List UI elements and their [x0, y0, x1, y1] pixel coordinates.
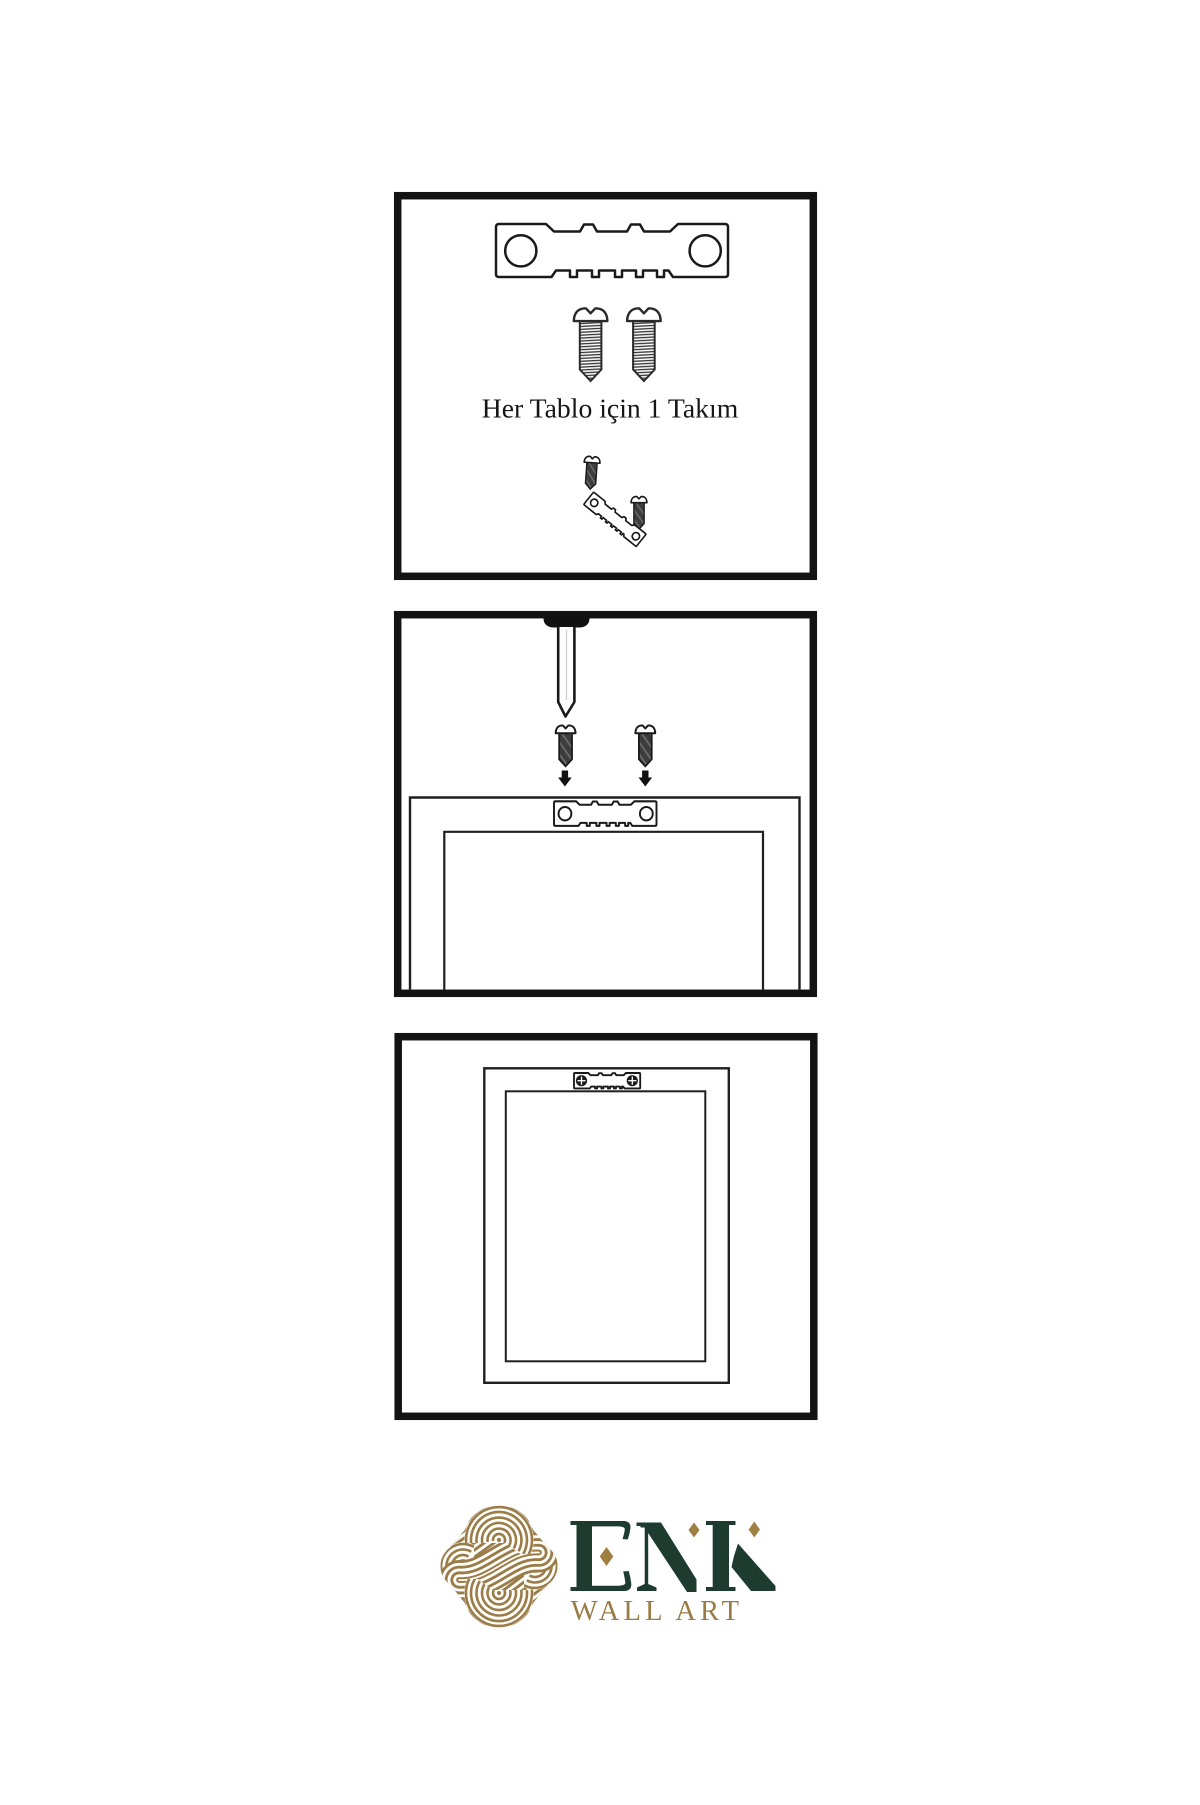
svg-text:Her Tablo için 1 Takım: Her Tablo için 1 Takım [482, 393, 739, 424]
svg-text:WALL ART: WALL ART [571, 1596, 744, 1627]
